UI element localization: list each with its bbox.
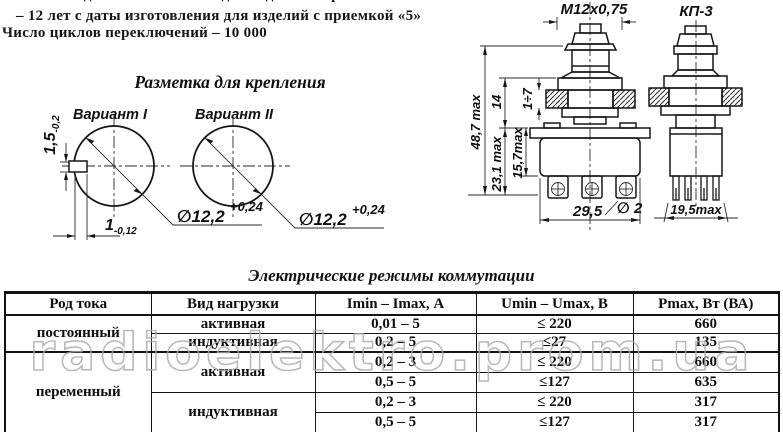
arrowhead bbox=[622, 20, 630, 24]
arrowhead bbox=[503, 120, 507, 128]
cell-voltage-range: ≤ 220 bbox=[476, 393, 633, 413]
height-total-dim: 48,7 max bbox=[468, 94, 483, 151]
cell-power: 317 bbox=[633, 393, 779, 413]
table-header-row: Род тока Вид нагрузки Imin – Imax, А Umi… bbox=[5, 293, 779, 316]
width-195-dim: 19,5max bbox=[670, 202, 722, 217]
shoulder-flare bbox=[561, 72, 620, 78]
col-header-umin-umax: Umin – Umax, В bbox=[476, 293, 633, 316]
ext-line bbox=[664, 203, 668, 222]
dia-leader bbox=[86, 138, 173, 225]
cell-current-range: 0,2 – 3 bbox=[315, 393, 476, 413]
variant1-label: Вариант I bbox=[73, 107, 148, 123]
neck bbox=[676, 115, 715, 128]
cell-voltage-range: ≤ 220 bbox=[476, 315, 633, 334]
button-tip bbox=[580, 24, 601, 33]
slot-depth-value: 1 bbox=[105, 217, 114, 234]
arrowhead bbox=[483, 46, 487, 55]
arrowhead bbox=[540, 218, 549, 222]
mounting-nut bbox=[661, 106, 730, 115]
arrowhead bbox=[503, 129, 507, 137]
arrowhead bbox=[64, 172, 68, 180]
stem bbox=[678, 54, 713, 70]
button-cap bbox=[677, 34, 714, 46]
button-tip bbox=[685, 26, 706, 34]
cell-voltage-range: ≤127 bbox=[476, 373, 633, 393]
cell-load: активная bbox=[151, 315, 315, 334]
cell-power: 317 bbox=[633, 413, 779, 432]
button-cap bbox=[572, 33, 609, 44]
spec-line-clipped: – 14 лет с даты изготовления для изделий… bbox=[14, 0, 419, 4]
spec-line-storage: – 12 лет с даты изготовления для изделий… bbox=[16, 8, 421, 25]
slot-height-value: 1,5 bbox=[42, 131, 59, 154]
height-157-dim: 15,7max bbox=[510, 127, 525, 179]
col-header-imin-imax: Imin – Imax, А bbox=[315, 293, 476, 316]
threaded-bushing bbox=[568, 90, 613, 108]
table-title: Электрические режимы коммутации bbox=[0, 266, 783, 286]
mounting-title: Разметка для крепления bbox=[133, 72, 325, 92]
cell-load: индуктивная bbox=[151, 334, 315, 353]
arrowhead bbox=[253, 188, 262, 194]
cell-load: индуктивная bbox=[151, 393, 315, 432]
cell-current-range: 0,5 – 5 bbox=[315, 373, 476, 393]
slot-height-tol: -0,2 bbox=[51, 115, 62, 133]
slot-depth-dim: 1-0,12 bbox=[105, 217, 137, 237]
cell-power: 660 bbox=[633, 352, 779, 373]
col-header-pmax: Pmax, Вт (ВА) bbox=[633, 293, 779, 316]
cell-current-range: 0,2 – 3 bbox=[315, 352, 476, 373]
arrowhead bbox=[87, 234, 95, 238]
col-header-current: Род тока bbox=[5, 293, 151, 316]
key-slot bbox=[69, 161, 87, 172]
slot-depth-tol: -0,12 bbox=[114, 226, 137, 237]
cell-current-range: 0,2 – 5 bbox=[315, 334, 476, 353]
arrowhead bbox=[64, 154, 68, 162]
cell-power: 635 bbox=[633, 373, 779, 393]
arrowhead bbox=[86, 138, 95, 144]
thread-dim-label: М12х0,75 bbox=[561, 1, 628, 18]
arrowhead bbox=[631, 218, 640, 222]
model-label: КП-3 bbox=[679, 3, 713, 20]
stem bbox=[572, 50, 609, 72]
ext-line bbox=[724, 203, 728, 222]
arrowhead bbox=[483, 186, 487, 195]
cell-current-ac: переменный bbox=[5, 352, 151, 432]
variant2-label: Вариант II bbox=[195, 107, 274, 123]
cell-current-range: 0,01 – 5 bbox=[315, 315, 476, 334]
table-row: постоянный активная 0,01 – 5 ≤ 220 660 bbox=[5, 315, 779, 334]
arrowhead bbox=[503, 78, 507, 87]
switch-outline-drawing: М12х0,75 48,7 max 14 23,1 max 15,7max 1÷ bbox=[440, 0, 783, 245]
table-row: переменный активная 0,2 – 3 ≤ 220 660 bbox=[5, 352, 779, 373]
cell-current-dc: постоянный bbox=[5, 315, 151, 352]
cell-load: активная bbox=[151, 352, 315, 393]
height-231-dim: 23,1 max bbox=[489, 136, 504, 193]
arrowhead bbox=[549, 20, 557, 24]
arrowhead bbox=[537, 108, 541, 115]
arrowhead bbox=[205, 138, 214, 144]
electrical-modes-table: Род тока Вид нагрузки Imin – Imax, А Umi… bbox=[4, 291, 780, 432]
arrowhead bbox=[67, 234, 75, 238]
datasheet-page: – 14 лет с даты изготовления для изделий… bbox=[0, 0, 783, 432]
cell-power: 135 bbox=[633, 334, 779, 353]
dia-value-1: ∅12,2 bbox=[177, 207, 225, 226]
cell-voltage-range: ≤ 220 bbox=[476, 352, 633, 373]
dia-value-2: ∅12,2 bbox=[299, 210, 347, 229]
dia-tol-2: +0,24 bbox=[352, 202, 386, 217]
shoulder-flare bbox=[672, 70, 719, 76]
height-14-dim: 14 bbox=[489, 94, 504, 109]
panel-section-left bbox=[649, 88, 669, 106]
cell-power: 660 bbox=[633, 315, 779, 334]
cell-voltage-range: ≤27 bbox=[476, 334, 633, 353]
mounting-layout-drawing: Разметка для крепления Вариант I Вариант… bbox=[20, 55, 470, 245]
cap-step bbox=[674, 46, 717, 54]
cell-current-range: 0,5 – 5 bbox=[315, 413, 476, 432]
cell-voltage-range: ≤127 bbox=[476, 413, 633, 432]
arrowhead bbox=[537, 83, 541, 90]
threaded-bushing bbox=[669, 88, 722, 106]
collar bbox=[664, 76, 727, 88]
hole-dia-dim: ∅ 2 bbox=[617, 200, 643, 217]
panel-section-left bbox=[546, 90, 568, 108]
width-295-dim: 29,5 bbox=[572, 203, 603, 220]
panel-section-right bbox=[722, 88, 742, 106]
panel-range-dim: 1÷7 bbox=[520, 87, 535, 109]
slot-height-dim: 1,5-0,2 bbox=[42, 115, 62, 155]
cap-flare bbox=[565, 44, 616, 50]
dia-tol-1: +0,24 bbox=[230, 199, 264, 214]
arrowhead bbox=[134, 188, 143, 194]
panel-section-right bbox=[613, 90, 635, 108]
col-header-load: Вид нагрузки bbox=[151, 293, 315, 316]
spec-line-cycles: Число циклов переключений – 10 000 bbox=[2, 25, 267, 42]
